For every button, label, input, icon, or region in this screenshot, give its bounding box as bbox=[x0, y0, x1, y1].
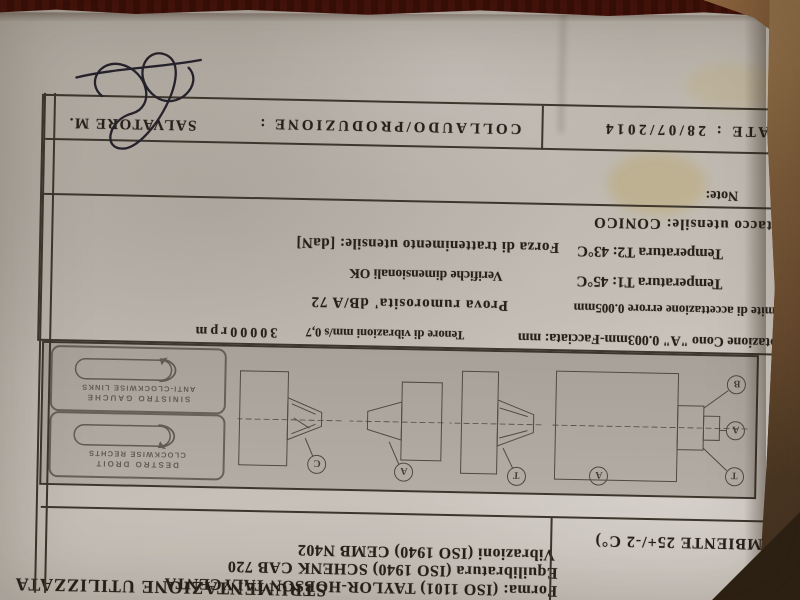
stamp-clockwise: DESTRO DROIT CLOCKWISE RECHTS bbox=[48, 411, 225, 481]
stamp-cw-line1: DESTRO DROIT bbox=[94, 459, 179, 470]
stamp-anticlockwise: SINISTRO GAUCHE ANTI-CLOCKWISE LINKS bbox=[50, 345, 227, 415]
result-tenore: Tenore di vibrazioni mm/s 0,7 bbox=[305, 324, 464, 342]
result-verifiche: Verifiche dimensionali OK bbox=[349, 265, 503, 284]
paper-sheet: STRUMENTAZIONE UTILIZZATA Forma: (ISO 11… bbox=[0, 0, 800, 600]
result-rpm: 30000rpm bbox=[193, 322, 278, 340]
document-content: STRUMENTAZIONE UTILIZZATA Forma: (ISO 11… bbox=[0, 0, 800, 600]
clockwise-arrow-icon bbox=[62, 421, 212, 450]
svg-text:A: A bbox=[731, 424, 739, 435]
svg-text:A: A bbox=[594, 469, 602, 480]
spindle-drawings: T A B A T A bbox=[233, 351, 751, 493]
result-temp2: Temperatura T2: 43°C bbox=[577, 242, 723, 262]
stamp-ccw-line1: SINISTRO GAUCHE bbox=[86, 393, 191, 404]
divider-horizontal bbox=[41, 506, 786, 523]
anticlockwise-arrow-icon bbox=[63, 355, 213, 384]
svg-text:T: T bbox=[730, 470, 737, 481]
svg-text:C: C bbox=[313, 457, 320, 468]
signature-scribble bbox=[70, 30, 208, 168]
note-label: Note: bbox=[705, 186, 738, 203]
svg-text:B: B bbox=[733, 378, 740, 389]
svg-text:A: A bbox=[399, 465, 407, 476]
result-temp1: Temperatura T1: 45°C bbox=[576, 272, 722, 292]
paper-edge-shadow-right bbox=[744, 0, 766, 600]
stamp-cw-line2: CLOCKWISE RECHTS bbox=[88, 449, 186, 460]
photo-of-test-certificate: STRUMENTAZIONE UTILIZZATA Forma: (ISO 11… bbox=[0, 0, 800, 600]
svg-text:T: T bbox=[512, 469, 519, 480]
